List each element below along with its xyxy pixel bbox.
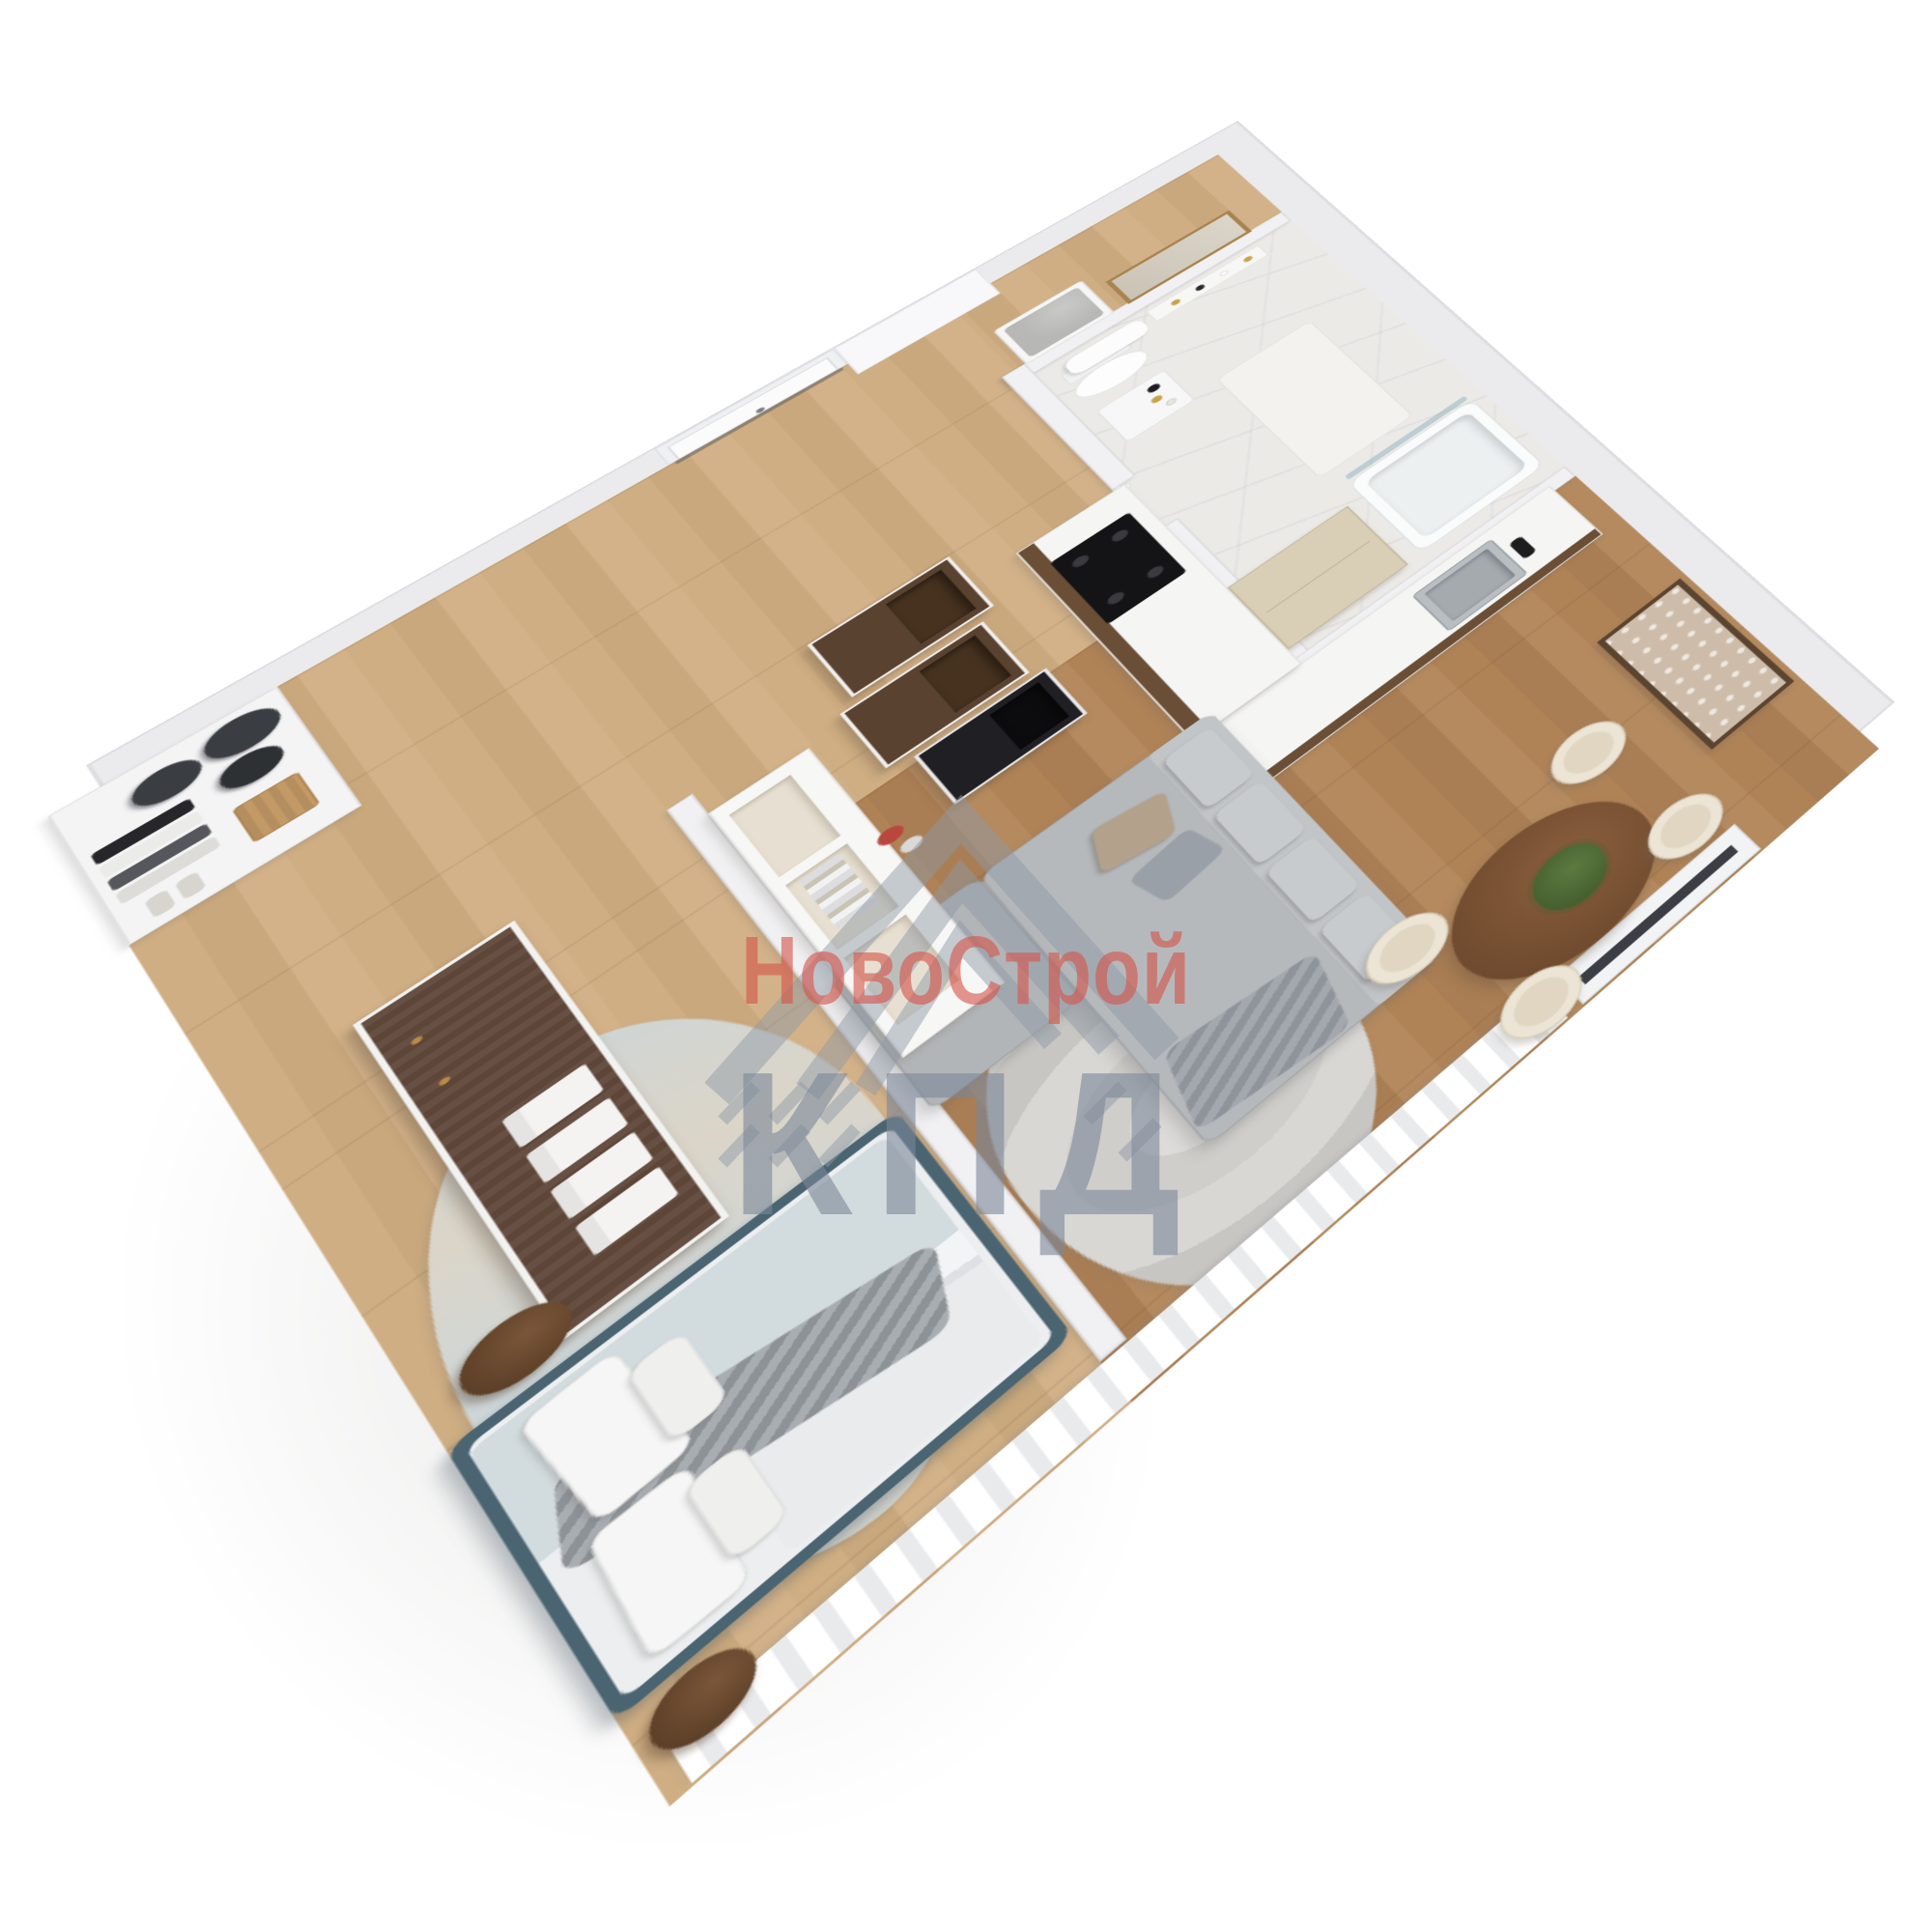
floor-plan-render: НовоСтрой КПД bbox=[0, 0, 1932, 1932]
